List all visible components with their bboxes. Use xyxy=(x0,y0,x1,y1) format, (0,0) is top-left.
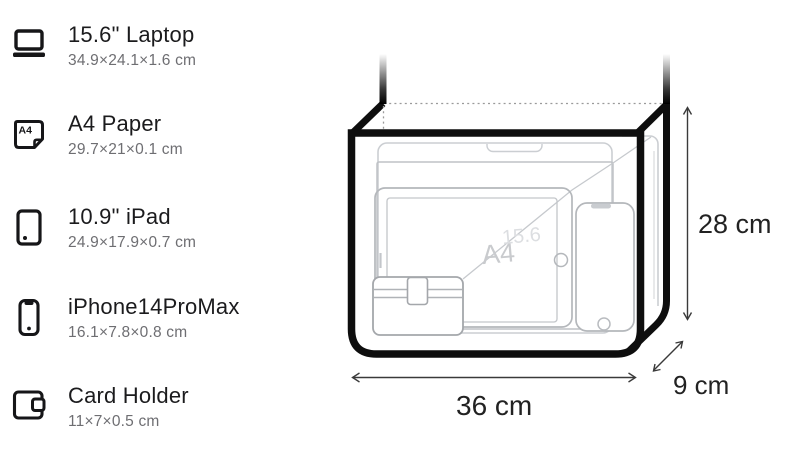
height-dimension xyxy=(684,108,692,320)
bag-dimensions-diagram: A4 15.6 28 cm 36 cm 9 cm xyxy=(0,0,800,455)
strap-left xyxy=(380,54,387,104)
depth-label: 9 cm xyxy=(673,370,729,400)
bag-back-edge-dotted xyxy=(384,104,666,132)
height-label: 28 cm xyxy=(698,209,772,239)
depth-dimension xyxy=(654,342,683,372)
laptop-watermark: 15.6 xyxy=(501,224,542,249)
iphone-outline xyxy=(576,203,634,331)
width-dimension xyxy=(353,373,636,382)
card-holder-outline xyxy=(373,277,463,335)
strap-right xyxy=(663,54,670,104)
width-label: 36 cm xyxy=(456,390,532,421)
